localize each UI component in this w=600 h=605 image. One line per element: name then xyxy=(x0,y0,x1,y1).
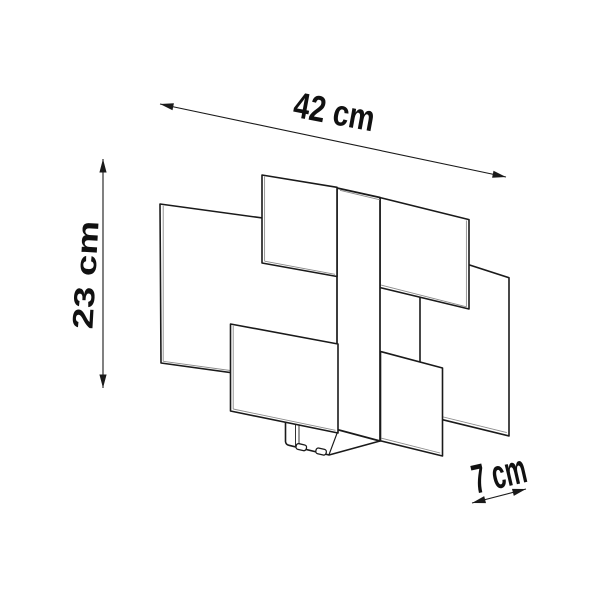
svg-text:23 cm: 23 cm xyxy=(67,220,106,330)
